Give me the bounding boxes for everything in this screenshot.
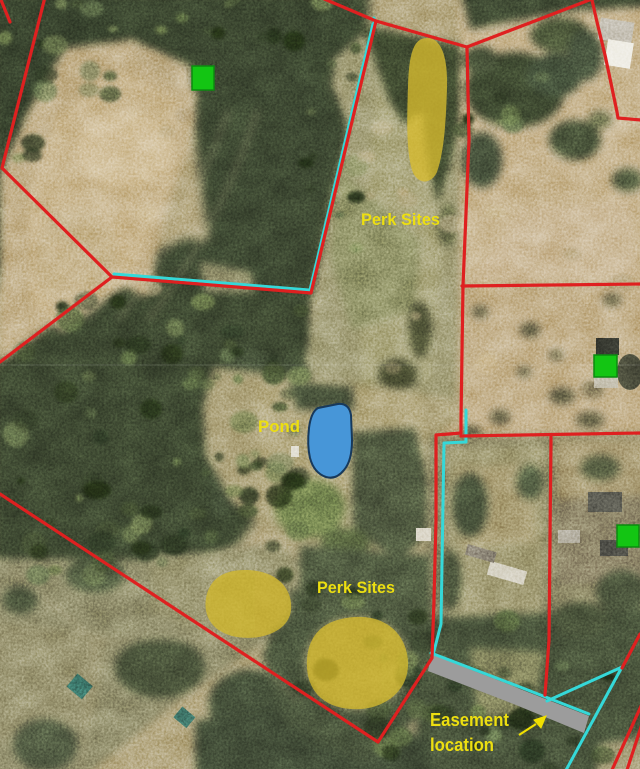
svg-text:Pond: Pond [258,417,300,436]
svg-text:Perk Sites: Perk Sites [317,578,395,597]
svg-text:location: location [430,735,494,755]
svg-text:Perk Sites: Perk Sites [361,210,440,229]
svg-text:Easement: Easement [430,710,509,730]
